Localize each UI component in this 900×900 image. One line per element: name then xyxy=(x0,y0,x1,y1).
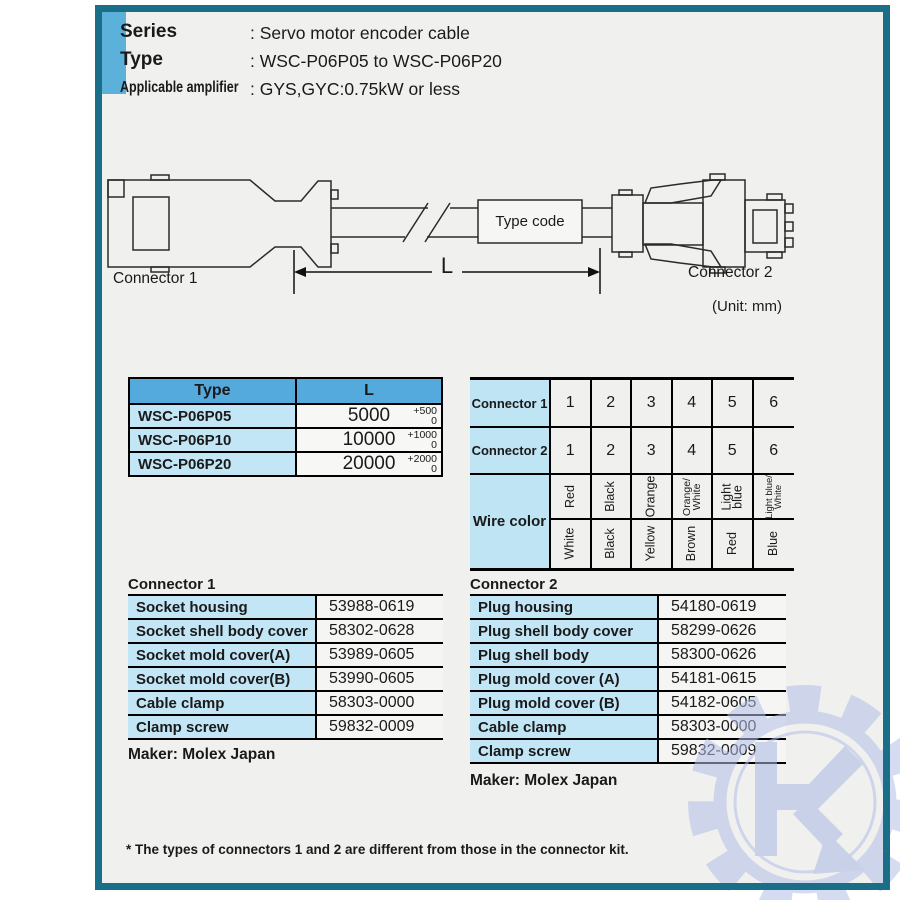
pin-number: 4 xyxy=(673,380,714,426)
wire-color-top: Lightblue xyxy=(721,483,743,510)
cable-type: WSC-P06P20 xyxy=(130,453,297,475)
connector2-parts-table: Plug housing 54180-0619 Plug shell body … xyxy=(470,594,786,764)
part-label: Plug mold cover (A) xyxy=(470,668,659,690)
table-row: Socket mold cover(B) 53990-0605 xyxy=(128,668,443,692)
table-row: Socket mold cover(A) 53989-0605 xyxy=(128,644,443,668)
cable-type: WSC-P06P10 xyxy=(130,429,297,451)
pin-number: 4 xyxy=(673,428,714,473)
connector2-plug xyxy=(745,200,785,252)
arrowhead-left xyxy=(294,267,306,277)
wire-color-bottom: Blue xyxy=(768,530,779,555)
part-label: Socket mold cover(B) xyxy=(128,668,317,690)
type-label: Type xyxy=(120,49,163,71)
wire-color-top: Red xyxy=(565,485,576,508)
cable-break-marks xyxy=(403,203,450,242)
cable-length: 20000 xyxy=(343,453,396,475)
part-label: Socket housing xyxy=(128,596,317,618)
table-row: Plug housing 54180-0619 xyxy=(470,596,786,620)
table-row: Cable clamp 58303-0000 xyxy=(470,716,786,740)
pin-number: 3 xyxy=(632,428,673,473)
part-number: 53989-0605 xyxy=(317,644,443,666)
part-number: 58302-0628 xyxy=(317,620,443,642)
table-row: Socket housing 53988-0619 xyxy=(128,596,443,620)
part-number: 54181-0615 xyxy=(659,668,786,690)
connector2-table-title: Connector 2 xyxy=(470,576,558,593)
wire-color-top: Orange xyxy=(646,476,657,518)
length-dimension-label: L xyxy=(432,252,462,280)
connector2-latch-top xyxy=(645,180,721,203)
table-row: Plug mold cover (B) 54182-0605 xyxy=(470,692,786,716)
cable-diagram xyxy=(105,170,795,325)
wire-row-header: Wire color xyxy=(470,475,551,568)
cable-length: 5000 xyxy=(348,405,390,427)
connector1-maker: Maker: Molex Japan xyxy=(128,746,275,764)
part-label: Plug mold cover (B) xyxy=(470,692,659,714)
document-frame: Series : Servo motor encoder cable Type … xyxy=(95,5,890,890)
wire-row-header: Connector 1 xyxy=(470,380,551,426)
pin-number: 2 xyxy=(592,428,633,473)
arrowhead-right xyxy=(588,267,600,277)
part-number: 58300-0626 xyxy=(659,644,786,666)
connector2-shell xyxy=(703,180,745,267)
connector1-outline xyxy=(108,180,331,267)
cable-length: 10000 xyxy=(343,429,396,451)
part-label: Plug shell body cover xyxy=(470,620,659,642)
table-row: Plug shell body 58300-0626 xyxy=(470,644,786,668)
amplifier-value: : GYS,GYC:0.75kW or less xyxy=(250,79,460,100)
pin-number: 3 xyxy=(632,380,673,426)
pin-number: 2 xyxy=(592,380,633,426)
series-value: : Servo motor encoder cable xyxy=(250,23,470,44)
part-label: Plug shell body xyxy=(470,644,659,666)
part-label: Clamp screw xyxy=(128,716,317,738)
type-column-header: Type xyxy=(130,379,297,403)
part-number: 59832-0009 xyxy=(659,740,786,762)
type-value: : WSC-P06P05 to WSC-P06P20 xyxy=(250,51,502,72)
table-row: Plug shell body cover 58299-0626 xyxy=(470,620,786,644)
wire-row-header: Connector 2 xyxy=(470,428,551,473)
connector2-maker: Maker: Molex Japan xyxy=(470,772,617,790)
table-row: Clamp screw 59832-0009 xyxy=(128,716,443,740)
connector1-diagram-label: Connector 1 xyxy=(113,270,197,288)
pin-number: 5 xyxy=(713,380,754,426)
wire-color-bottom: Red xyxy=(727,532,738,555)
table-row: Cable clamp 58303-0000 xyxy=(128,692,443,716)
part-label: Socket shell body cover xyxy=(128,620,317,642)
part-number: 58303-0000 xyxy=(659,716,786,738)
wire-color-bottom: Yellow xyxy=(646,525,657,561)
part-number: 53988-0619 xyxy=(317,596,443,618)
length-tolerance: +500 0 xyxy=(413,406,437,426)
connector1-parts-table: Socket housing 53988-0619 Socket shell b… xyxy=(128,594,443,740)
part-label: Clamp screw xyxy=(470,740,659,762)
wire-color-top: Light blue/White xyxy=(765,475,783,519)
wire-color-bottom: Brown xyxy=(686,525,697,560)
pin-number: 5 xyxy=(713,428,754,473)
wire-color-table: Connector 1 1 2 3 4 5 6 Connector 2 1 2 … xyxy=(470,377,794,571)
part-label: Plug housing xyxy=(470,596,659,618)
part-label: Cable clamp xyxy=(470,716,659,738)
table-row: WSC-P06P10 10000 +1000 0 xyxy=(130,427,441,451)
amplifier-label: Applicable amplifier xyxy=(120,79,239,97)
pin-number: 6 xyxy=(754,380,795,426)
length-tolerance: +2000 0 xyxy=(408,454,438,474)
part-number: 58303-0000 xyxy=(317,692,443,714)
part-number: 58299-0626 xyxy=(659,620,786,642)
wire-color-top: Orange/White xyxy=(682,478,702,516)
table-row: WSC-P06P05 5000 +500 0 xyxy=(130,403,441,427)
part-label: Cable clamp xyxy=(128,692,317,714)
cable-type: WSC-P06P05 xyxy=(130,405,297,427)
table-row: Clamp screw 59832-0009 xyxy=(470,740,786,764)
pin-number: 1 xyxy=(551,428,592,473)
series-label: Series xyxy=(120,21,177,43)
wire-color-top: Black xyxy=(605,481,616,512)
wire-color-bottom: Black xyxy=(605,528,616,559)
footnote: * The types of connectors 1 and 2 are di… xyxy=(126,842,629,857)
length-tolerance: +1000 0 xyxy=(408,430,438,450)
datasheet-page: Series : Servo motor encoder cable Type … xyxy=(0,0,900,900)
part-number: 54182-0605 xyxy=(659,692,786,714)
table-row: Socket shell body cover 58302-0628 xyxy=(128,620,443,644)
unit-label: (Unit: mm) xyxy=(712,298,782,315)
part-label: Socket mold cover(A) xyxy=(128,644,317,666)
length-column-header: L xyxy=(297,379,441,403)
type-length-table: Type L WSC-P06P05 5000 +500 0 WSC-P06P10… xyxy=(128,377,443,477)
type-code-label: Type code xyxy=(478,200,582,243)
table-row: Plug mold cover (A) 54181-0615 xyxy=(470,668,786,692)
part-number: 59832-0009 xyxy=(317,716,443,738)
wire-color-bottom: White xyxy=(565,527,576,559)
connector1-table-title: Connector 1 xyxy=(128,576,216,593)
table-row: WSC-P06P20 20000 +2000 0 xyxy=(130,451,441,475)
part-number: 53990-0605 xyxy=(317,668,443,690)
pin-number: 1 xyxy=(551,380,592,426)
connector2-diagram-label: Connector 2 xyxy=(688,264,772,282)
pin-number: 6 xyxy=(754,428,795,473)
part-number: 54180-0619 xyxy=(659,596,786,618)
